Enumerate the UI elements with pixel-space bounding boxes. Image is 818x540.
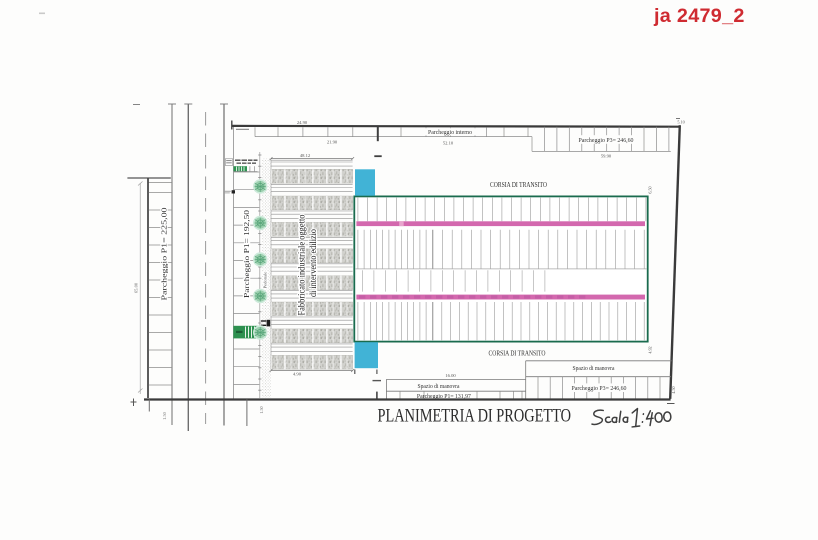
- svg-text:4.90: 4.90: [293, 372, 302, 377]
- svg-text:6.50: 6.50: [648, 186, 653, 193]
- svg-text:Parcheggio P1= 192,50: Parcheggio P1= 192,50: [243, 209, 251, 298]
- svg-text:5.10: 5.10: [677, 120, 684, 125]
- svg-text:52.10: 52.10: [443, 140, 454, 145]
- svg-text:65.00: 65.00: [134, 282, 139, 293]
- svg-text:di intervento edilizio: di intervento edilizio: [308, 229, 319, 297]
- svg-text:Parcheggio P1= 225,00: Parcheggio P1= 225,00: [161, 207, 169, 301]
- svg-text:PLANIMETRIA DI PROGETTO: PLANIMETRIA DI PROGETTO: [378, 406, 572, 427]
- svg-text:Spazio di manovra: Spazio di manovra: [573, 366, 615, 372]
- svg-text:48.12: 48.12: [300, 153, 311, 158]
- svg-text:Spazio di manovra: Spazio di manovra: [418, 384, 460, 390]
- svg-text:4.50: 4.50: [671, 386, 676, 393]
- svg-text:24.90: 24.90: [297, 120, 308, 125]
- svg-text:CORSIA DI TRANSITO: CORSIA DI TRANSITO: [490, 182, 547, 189]
- svg-text:Parcheggio interno: Parcheggio interno: [428, 130, 472, 136]
- svg-text:1.50: 1.50: [259, 406, 264, 413]
- svg-text:16.00: 16.00: [445, 373, 456, 378]
- svg-text:ja 2479_2: ja 2479_2: [653, 5, 745, 27]
- svg-text:CORSIA DI TRANSITO: CORSIA DI TRANSITO: [489, 351, 546, 358]
- svg-text:Parcheggio P3= 246,60: Parcheggio P3= 246,60: [579, 138, 634, 144]
- svg-text:4.92: 4.92: [648, 346, 653, 353]
- svg-text:Fabbricato industriale oggetto: Fabbricato industriale oggetto: [297, 214, 308, 315]
- svg-text:Parcheggio P3= 246,60: Parcheggio P3= 246,60: [572, 386, 627, 392]
- svg-text:1.50: 1.50: [162, 411, 167, 419]
- svg-text:59.90: 59.90: [601, 153, 612, 158]
- svg-text:21.90: 21.90: [327, 139, 338, 144]
- svg-text:Pedonale: Pedonale: [263, 272, 268, 289]
